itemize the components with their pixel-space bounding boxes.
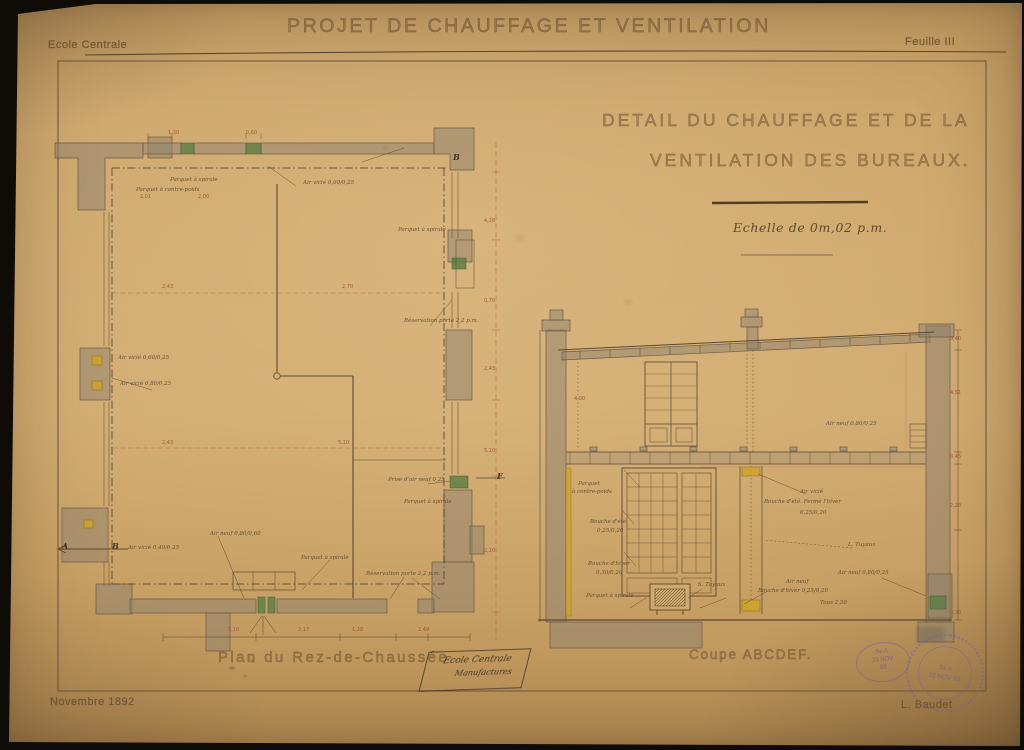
drawing-sheet: Ecole Centrale PROJET DE CHAUFFAGE ET VE… [0, 0, 1024, 750]
author-signature: L. Baudet [901, 699, 953, 711]
section-dimension: 4,00 [574, 396, 585, 402]
stamp-inner-circle: 5e A 23 NOV 93 [915, 643, 976, 704]
section-dimension-layer: 0,404,510,452,200,304,00 [0, 0, 1024, 750]
section-dimension: 0,45 [950, 454, 961, 460]
school-office-stamp: Ecole Centrale Manufactures [418, 648, 531, 692]
stamp-line: Ecole Centrale [426, 653, 529, 666]
date-note: Novembre 1892 [50, 696, 135, 708]
plan-caption: Plan du Rez-de-Chaussée [218, 649, 449, 666]
section-dimension: 0,30 [950, 610, 961, 616]
section-dimension: 2,20 [950, 503, 961, 509]
section-dimension: 4,51 [950, 390, 961, 396]
tape-residue-mark [916, 627, 944, 642]
scanned-drawing-photo: { "header": { "school": "Ecole Centrale"… [0, 0, 1024, 750]
section-dimension: 0,40 [950, 336, 961, 342]
stamp-line: Manufactures [441, 666, 526, 678]
section-caption: Coupe ABCDEF. [689, 647, 812, 662]
